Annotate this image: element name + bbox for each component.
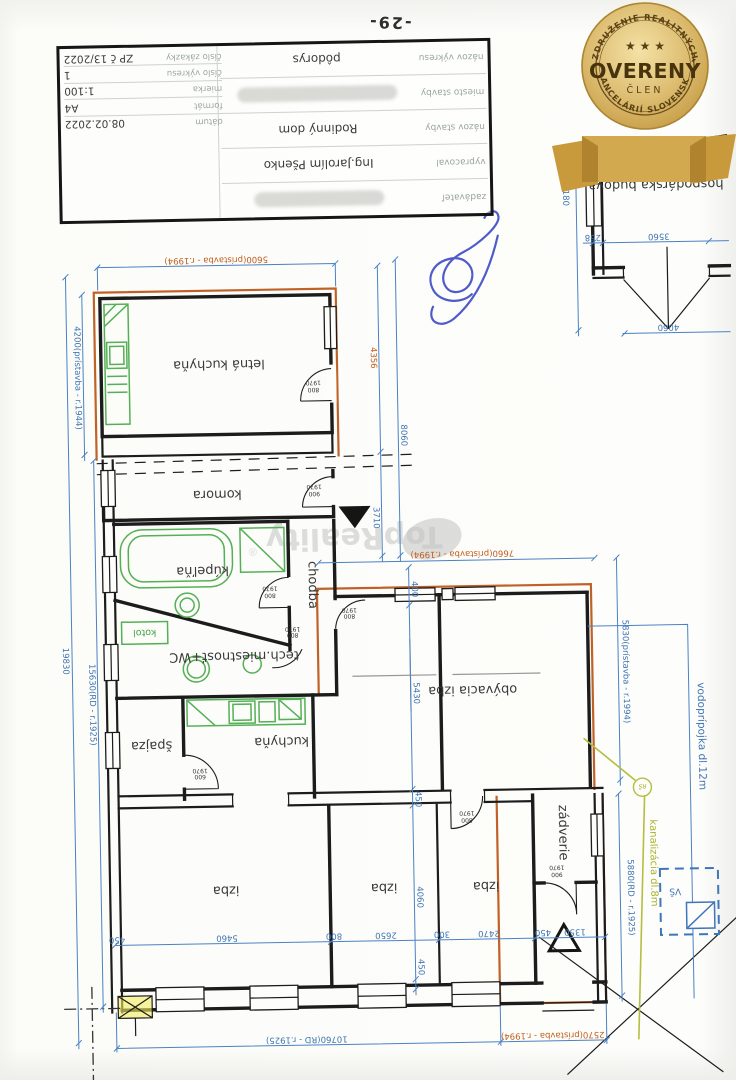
room-izba-3: izba [473,878,500,893]
main-house-plan: letná kuchyňa 800 1970 komora 900 1970 [52,282,736,1080]
svg-text:1970: 1970 [306,483,322,490]
room-tech: tech.miestnosť+WC [169,647,299,664]
title-row-miesto-stavby: miesto stavby [220,73,487,113]
dim-8060: 8060 [398,424,408,446]
author-name: Ing.Jarolím Pšenko [222,155,416,173]
door-label-spajza: 600 1970 [192,767,208,780]
dim-4060-outbuilding: 4060 [657,322,679,332]
dimension-annotations: 5600(prístavba - r.1994) 4200(prístavba … [53,247,638,1053]
dim-450-right: 450 [535,927,551,937]
dim-19830: 19830 [60,648,70,675]
title-row-nazov-stavby: názov stavby Rodinný dom [221,108,488,148]
dim-400: 400 [409,581,419,597]
dim-450-b: 450 [415,959,425,975]
dim-2650: 2650 [375,930,397,940]
dim-5830: 5830(prístavba - r.1994) [620,620,632,724]
redacted-value [254,190,384,207]
title-row-label: názov stavby [415,121,487,132]
svg-text:1970: 1970 [305,379,321,386]
building-name: Rodinný dom [221,120,415,138]
badge-stars: ★ ★ ★ [625,39,665,53]
svg-text:1970: 1970 [459,809,475,816]
dim-300: 300 [434,929,450,939]
room-izba-1: izba [213,882,240,897]
svg-text:1970: 1970 [192,767,208,774]
dim-800: 800 [326,930,342,940]
dim-15630: 15630(RD - r.1925) [86,664,97,746]
dim-10760: 10760(RD - r.1925) [266,1033,348,1044]
water-shaft-label: VŠ [669,886,681,898]
door-label-letna: 800 1970 [305,379,321,393]
sewer-manhole-label: RŠ [638,782,646,789]
room-izba-2: izba [371,880,398,895]
dim-3560: 3560 [648,231,670,241]
room-kuchyna: kuchyňa [254,733,309,749]
room-letna-kuchyna: letná kuchyňa [173,356,265,373]
dim-2570: 2570(prístavba - r.1994) [501,1029,605,1041]
dim-1350: 1350 [564,926,586,936]
room-zadverie: zádverie [555,805,571,861]
svg-text:1970: 1970 [341,606,357,613]
badge-title: OVERENÝ [589,58,702,83]
dim-258: 258 [585,232,601,242]
title-row-zadavatel: zadávateľ [222,178,489,218]
dim-2470: 2470 [478,928,500,938]
door-label-izba3: 800 1970 [459,809,475,823]
door-label-tech: 800 1970 [285,625,301,638]
page-number: -29- [352,3,429,33]
field-datum: dátum 08.02.2022 [65,114,223,132]
door-label-middle: 800 1970 [341,606,357,619]
room-obyvacia: obývacia izba [428,681,517,698]
title-row-vypracoval: vypracoval Ing.Jarolím Pšenko [221,143,488,183]
title-row-label: názov výkresu [414,51,486,62]
room-chodba: chodba [304,561,320,609]
badge-subtitle: ČLEN [626,84,663,96]
door-label-komora: 900 1970 [306,483,322,497]
door-label-zadverie: 900 1970 [549,864,565,878]
door-label-kupelna: 800 1970 [262,585,278,599]
dim-4060: 4060 [414,886,424,908]
pristavba-outline-zadverie [497,794,607,1004]
title-block: zadávateľ vypracoval Ing.Jarolím Pšenko … [56,38,493,224]
dim-5880: 5880(RD - r.1925) [625,859,636,935]
title-block-main-rows: zadávateľ vypracoval Ing.Jarolím Pšenko … [219,41,488,218]
title-row-label: vypracoval [416,156,488,167]
room-kotol: kotol [133,627,156,638]
field-cislo-zakazky: číslo zákazky ZP č 13/2022 [63,48,221,67]
sewer-label: kanalizácia dl.8m [647,819,661,906]
title-row-nazov-vykresu: názov výkresu pôdorys [219,39,486,78]
drawing-name: pôdorys [220,50,414,68]
svg-text:1970: 1970 [549,864,565,871]
dim-5430: 5430 [411,682,421,704]
watermark-reg: ® [247,545,258,558]
title-block-fields: dátum 08.02.2022 formát A4 mierka 1:100 … [63,48,223,132]
scanned-floor-plan-page: -29- TopReality ® [0,0,736,1080]
dim-450-a: 450 [412,791,422,807]
field-format: formát A4 [64,97,222,116]
room-komora: komora [193,486,242,502]
title-row-label: zadávateľ [416,191,488,202]
redacted-value [237,85,397,103]
svg-text:1970: 1970 [285,625,301,632]
svg-text:1970: 1970 [262,585,278,592]
room-kupelna: kúpeľňa [176,562,229,578]
dim-5460: 5460 [216,932,238,942]
water-connection-label: vodoprípojka dl.12m [695,682,709,790]
dim-5600: 5600(prístavba - r.1994) [164,254,268,266]
dim-4200: 4200(prístavba - r.1944) [71,326,83,430]
dim-450-left: 450 [109,934,125,944]
field-cislo-vykresu: číslo výkresu 1 [64,64,222,83]
badge-ribbon [552,134,736,192]
yellow-highlight-mark [118,996,153,1037]
handwritten-signature [429,211,500,324]
room-spajza: špajza [131,737,173,753]
dim-3710: 3710 [371,507,381,529]
field-mierka: mierka 1:100 [64,81,222,100]
verified-member-badge: ZDRUŽENIE REALITNÝCH KANCELÁRIÍ SLOVENSK… [552,0,736,206]
title-row-label: miesto stavby [414,86,486,97]
dim-7660: 7660(prístavba - r.1994) [410,547,514,559]
dim-4356: 4356 [368,347,378,369]
